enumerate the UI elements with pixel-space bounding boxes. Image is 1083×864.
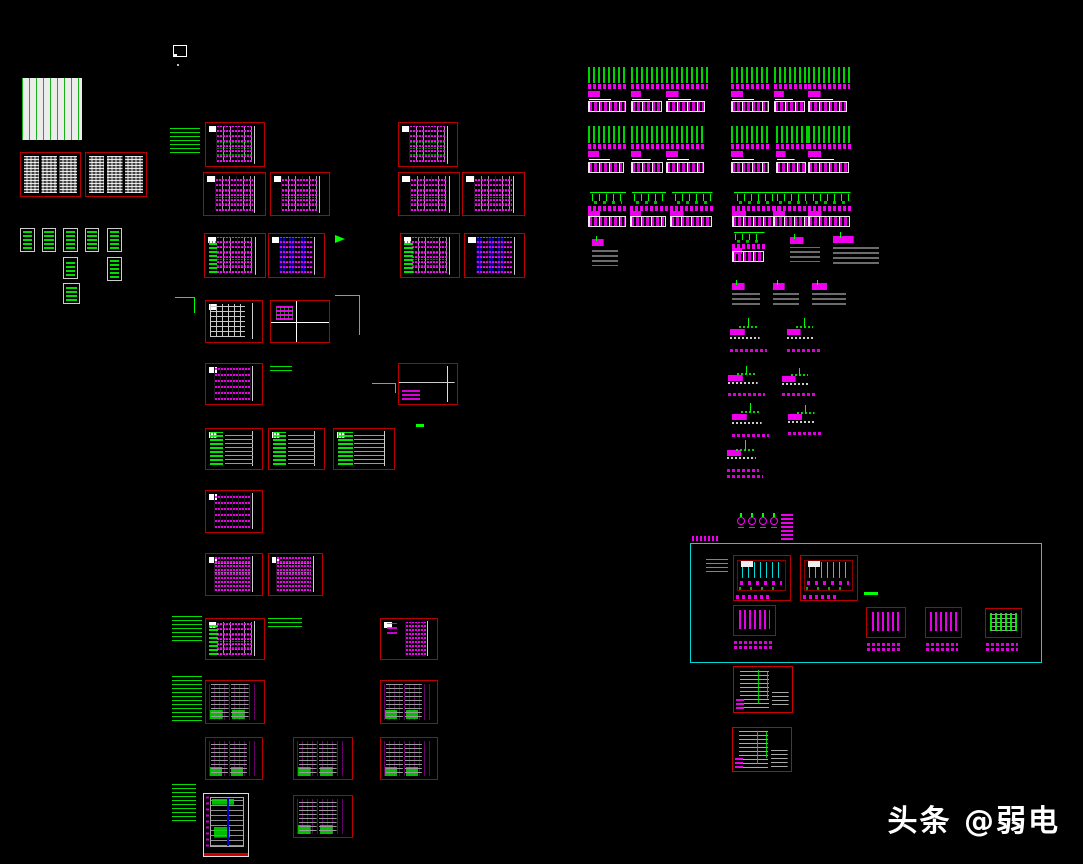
group-box-label[interactable] — [692, 536, 718, 541]
dual-ladder-schedule-block[interactable] — [205, 680, 265, 724]
wiring-detail-block[interactable] — [733, 555, 791, 601]
distribution-symbol-cluster[interactable] — [588, 192, 628, 227]
drawing-list-table[interactable] — [22, 78, 82, 140]
distribution-symbol-cluster[interactable] — [808, 67, 850, 112]
legend-item-block[interactable] — [85, 228, 99, 252]
legend-item-block[interactable] — [63, 228, 78, 252]
cad-canvas[interactable]: 头条 @弱电 — [0, 0, 1083, 864]
blank-frame-block[interactable] — [398, 363, 458, 405]
legend-item-block[interactable] — [20, 228, 35, 252]
viewport-rect-icon[interactable] — [173, 45, 187, 57]
leader-bracket[interactable] — [175, 297, 195, 313]
annotation-note-text[interactable] — [172, 615, 202, 641]
legend-item-block[interactable] — [42, 228, 56, 252]
annotation-note-text[interactable] — [706, 556, 728, 572]
distribution-symbol-cluster[interactable] — [808, 126, 852, 173]
leader-arrow[interactable] — [335, 235, 345, 243]
panel-schedule-block[interactable] — [464, 233, 525, 278]
panel-schedule-block[interactable] — [204, 233, 266, 278]
distribution-symbol-cluster[interactable] — [731, 126, 771, 173]
distribution-symbol-cluster[interactable] — [773, 192, 813, 227]
riser-diagram-block[interactable] — [268, 428, 325, 470]
dual-ladder-schedule-block[interactable] — [293, 795, 353, 838]
distribution-symbol-cluster[interactable] — [631, 67, 664, 112]
riser-diagram-block[interactable] — [333, 428, 395, 470]
annotation-note-text[interactable] — [268, 617, 302, 627]
distribution-symbol-cluster[interactable] — [730, 318, 767, 352]
panel-schedule-block[interactable] — [203, 172, 266, 216]
quadrant-layout-block[interactable] — [270, 300, 330, 343]
distribution-symbol-cluster[interactable] — [727, 440, 763, 478]
schedule-table-block[interactable] — [733, 666, 793, 713]
panel-schedule-block[interactable] — [205, 618, 265, 660]
circuit-ladder-block[interactable] — [205, 363, 263, 405]
legend-item-block[interactable] — [107, 228, 122, 252]
distribution-symbol-cluster[interactable] — [788, 405, 823, 435]
distribution-symbol-cluster[interactable] — [774, 67, 807, 112]
distribution-symbol-cluster[interactable] — [787, 318, 821, 352]
panel-schedule-block[interactable] — [398, 172, 460, 216]
panel-schedule-block[interactable] — [398, 122, 458, 167]
leader-bracket[interactable] — [335, 295, 360, 335]
dual-ladder-schedule-block[interactable] — [380, 680, 438, 724]
detail-symbol-block[interactable] — [985, 608, 1022, 638]
annotation-note-text[interactable] — [172, 675, 202, 721]
dual-ladder-schedule-block[interactable] — [380, 737, 438, 780]
distribution-symbol-cluster[interactable] — [670, 192, 715, 227]
distribution-symbol-cluster[interactable] — [732, 232, 766, 262]
panel-schedule-block[interactable] — [268, 233, 325, 278]
circuit-ladder-block[interactable] — [205, 553, 263, 596]
distribution-symbol-cluster[interactable] — [732, 280, 760, 305]
symbol-stack[interactable] — [781, 513, 793, 540]
leader-bracket[interactable] — [372, 383, 396, 393]
distribution-symbol-cluster[interactable] — [631, 126, 665, 173]
table-grid-block[interactable] — [205, 300, 263, 343]
distribution-symbol-cluster[interactable] — [666, 67, 708, 112]
distribution-symbol-cluster[interactable] — [666, 126, 706, 173]
dual-ladder-schedule-block[interactable] — [205, 737, 263, 780]
detail-symbol-block[interactable] — [733, 605, 776, 636]
distribution-symbol-cluster[interactable] — [808, 192, 853, 227]
annotation-note-text[interactable] — [170, 125, 200, 153]
distribution-symbol-cluster[interactable] — [728, 366, 765, 396]
luminaire-symbol[interactable] — [748, 517, 756, 525]
distribution-symbol-cluster[interactable] — [592, 236, 618, 266]
distribution-symbol-cluster[interactable] — [776, 126, 808, 173]
circuit-ladder-block[interactable] — [380, 618, 438, 660]
schedule-table-block[interactable] — [732, 727, 792, 772]
legend-item-block[interactable] — [63, 257, 78, 279]
annotation-dash[interactable] — [864, 592, 878, 595]
detail-symbol-block[interactable] — [925, 607, 962, 638]
distribution-symbol-cluster[interactable] — [588, 67, 628, 112]
dual-ladder-schedule-block[interactable] — [293, 737, 353, 780]
watermark: 头条 @弱电 — [888, 796, 1060, 840]
distribution-symbol-cluster[interactable] — [773, 280, 799, 305]
luminaire-symbol[interactable] — [759, 517, 767, 525]
luminaire-symbol[interactable] — [737, 517, 745, 525]
distribution-symbol-cluster[interactable] — [731, 67, 771, 112]
spec-text-block[interactable] — [20, 152, 81, 197]
annotation-dash[interactable] — [416, 424, 424, 427]
distribution-symbol-cluster[interactable] — [782, 368, 816, 396]
distribution-symbol-cluster[interactable] — [732, 403, 769, 437]
cursor-dot-icon — [177, 64, 179, 66]
legend-item-block[interactable] — [107, 257, 122, 281]
circuit-ladder-block[interactable] — [205, 490, 263, 533]
distribution-symbol-cluster[interactable] — [630, 192, 668, 227]
legend-item-block[interactable] — [63, 283, 80, 304]
spec-text-block[interactable] — [85, 152, 147, 197]
annotation-note-text[interactable] — [270, 363, 292, 371]
riser-diagram-block[interactable] — [205, 428, 263, 470]
distribution-symbol-cluster[interactable] — [833, 232, 879, 264]
wiring-detail-block[interactable] — [800, 555, 858, 601]
annotation-note-text[interactable] — [172, 783, 196, 821]
panel-schedule-block[interactable] — [462, 172, 525, 216]
distribution-symbol-cluster[interactable] — [588, 126, 626, 173]
luminaire-symbol[interactable] — [770, 517, 778, 525]
panel-schedule-block[interactable] — [205, 122, 265, 167]
system-diagram-block[interactable] — [203, 793, 249, 857]
circuit-ladder-block[interactable] — [268, 553, 323, 596]
distribution-symbol-cluster[interactable] — [812, 280, 846, 305]
panel-schedule-block[interactable] — [270, 172, 330, 216]
distribution-symbol-cluster[interactable] — [790, 234, 820, 262]
detail-symbol-block[interactable] — [866, 607, 906, 638]
panel-schedule-block[interactable] — [400, 233, 460, 278]
